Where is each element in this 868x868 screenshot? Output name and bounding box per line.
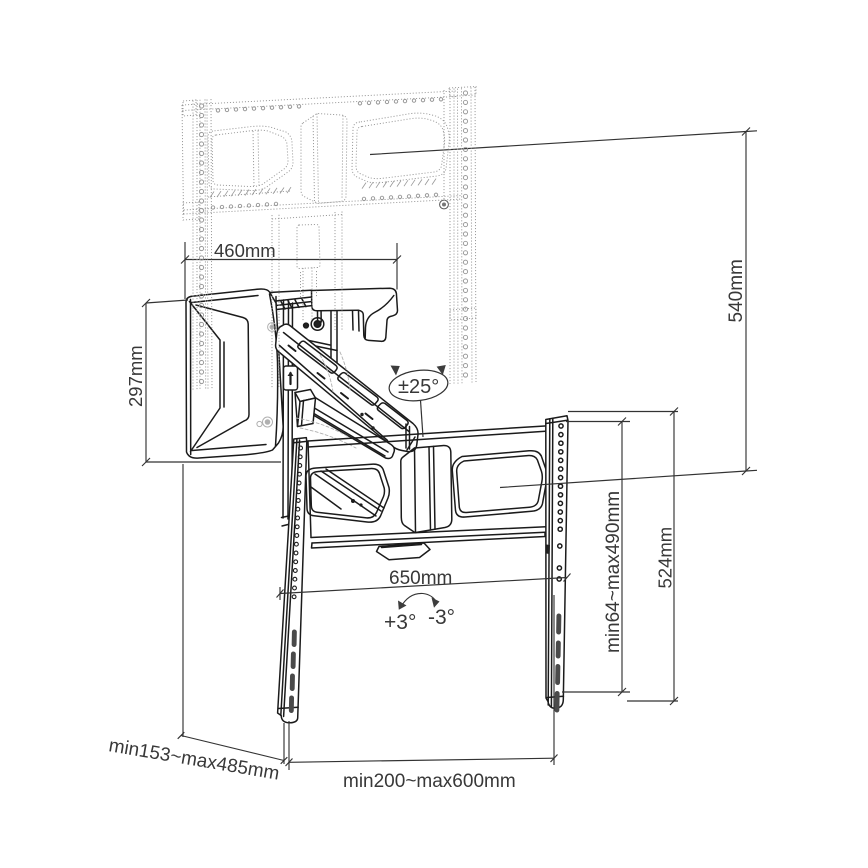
svg-text:-3°: -3° bbox=[428, 606, 455, 629]
svg-text:+3°: +3° bbox=[384, 611, 416, 634]
svg-text:524mm: 524mm bbox=[655, 527, 676, 589]
svg-text:297mm: 297mm bbox=[125, 345, 146, 407]
svg-text:min200~max600mm: min200~max600mm bbox=[343, 771, 516, 792]
svg-text:±25°: ±25° bbox=[398, 376, 439, 398]
svg-text:650mm: 650mm bbox=[389, 568, 452, 589]
svg-text:min64~max490mm: min64~max490mm bbox=[603, 491, 624, 653]
svg-text:min153~max485mm: min153~max485mm bbox=[107, 735, 281, 785]
svg-text:540mm: 540mm bbox=[726, 259, 747, 322]
svg-text:460mm: 460mm bbox=[214, 240, 276, 261]
